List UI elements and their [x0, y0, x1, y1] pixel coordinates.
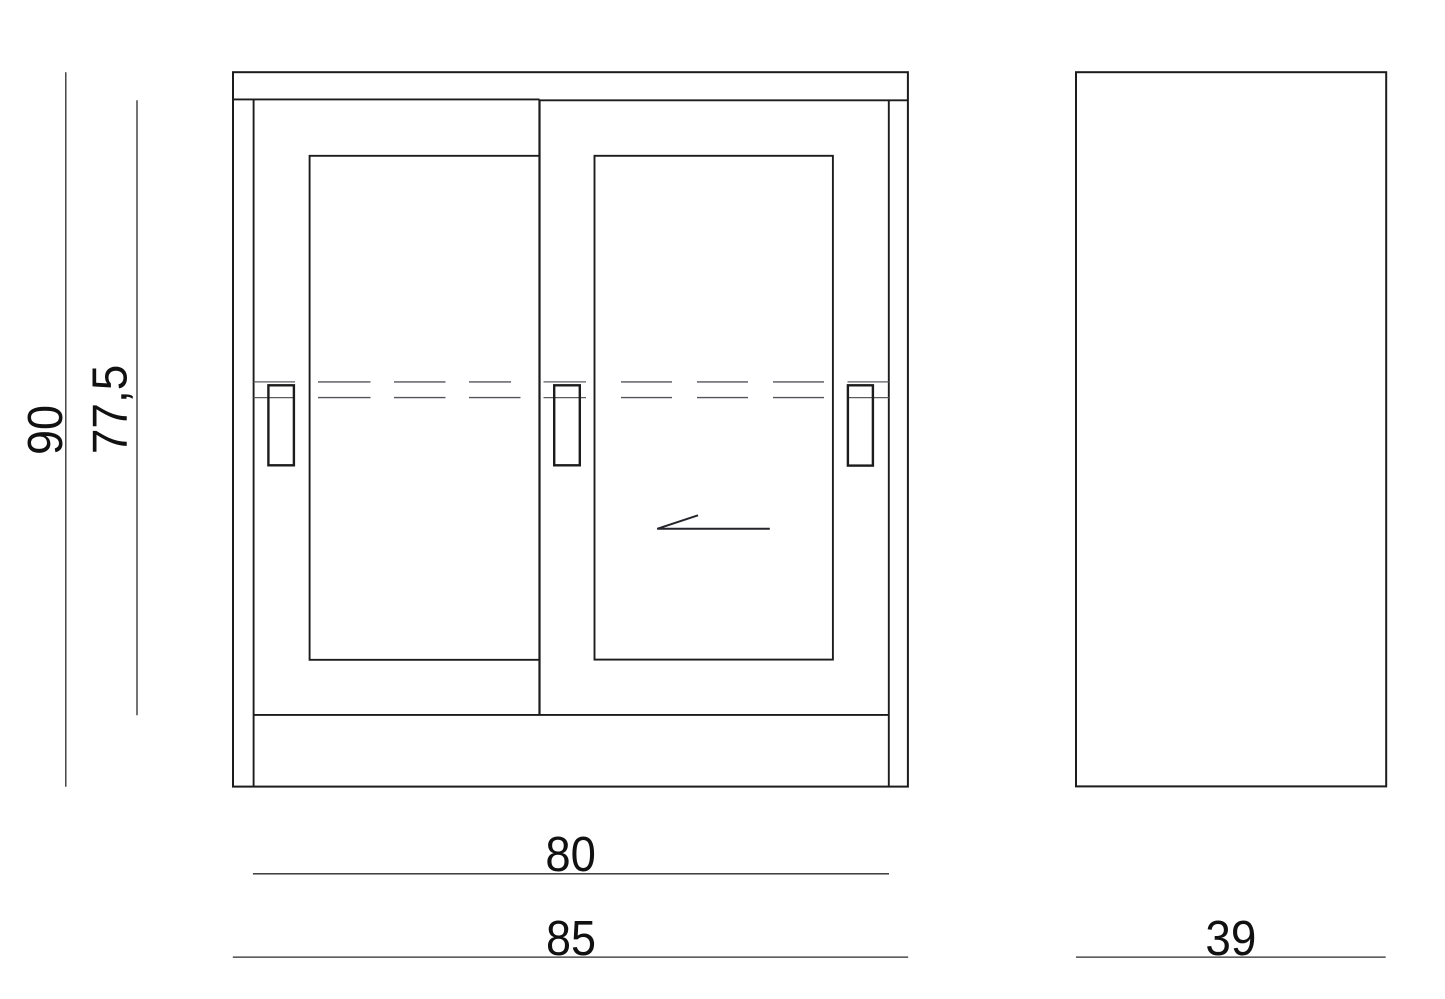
svg-text:80: 80: [545, 828, 596, 882]
svg-text:39: 39: [1205, 912, 1256, 966]
svg-text:77,5: 77,5: [83, 365, 137, 455]
svg-text:85: 85: [546, 912, 596, 966]
svg-text:90: 90: [19, 405, 73, 455]
